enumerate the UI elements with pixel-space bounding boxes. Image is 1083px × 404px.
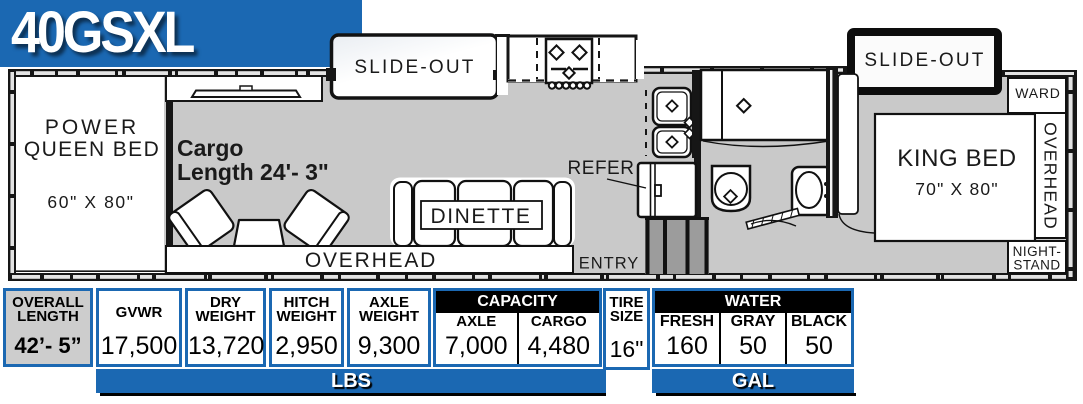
svg-text:Cargo: Cargo bbox=[177, 135, 243, 161]
svg-text:SLIDE-OUT: SLIDE-OUT bbox=[354, 57, 475, 78]
svg-text:ENTRY: ENTRY bbox=[579, 255, 640, 273]
svg-text:Length 24'- 3": Length 24'- 3" bbox=[177, 159, 329, 185]
svg-text:60" X 80": 60" X 80" bbox=[47, 192, 134, 212]
svg-text:QUEEN BED: QUEEN BED bbox=[24, 138, 160, 161]
svg-text:DINETTE: DINETTE bbox=[430, 205, 531, 228]
svg-text:WARD: WARD bbox=[1015, 85, 1060, 101]
svg-text:OVERHEAD: OVERHEAD bbox=[1041, 122, 1061, 230]
svg-text:OVERHEAD: OVERHEAD bbox=[305, 249, 437, 272]
svg-text:POWER: POWER bbox=[45, 116, 139, 139]
svg-text:REFER: REFER bbox=[568, 158, 635, 179]
svg-text:SLIDE-OUT: SLIDE-OUT bbox=[864, 50, 985, 71]
svg-text:70" X 80": 70" X 80" bbox=[915, 179, 999, 199]
svg-text:STAND: STAND bbox=[1013, 258, 1060, 273]
svg-text:KING BED: KING BED bbox=[897, 145, 1017, 172]
